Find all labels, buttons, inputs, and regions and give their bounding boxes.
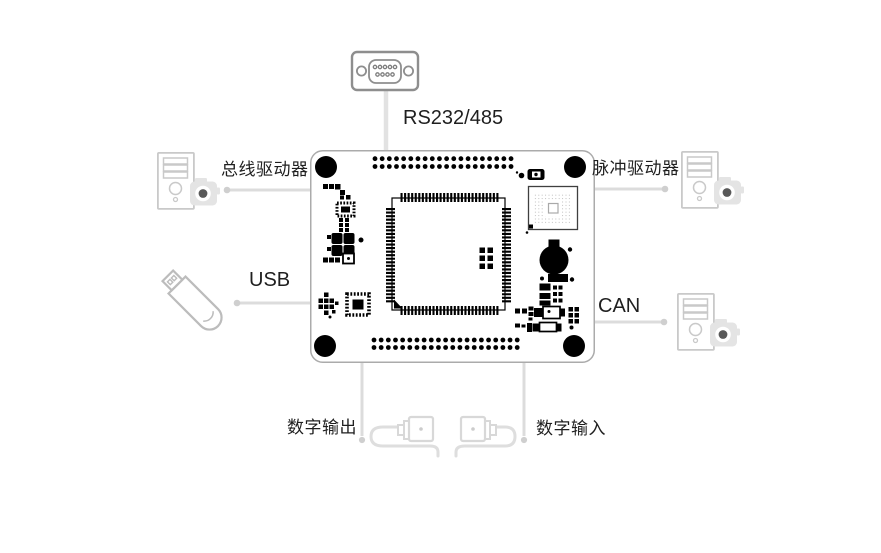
label-rs232-485: RS232/485 [403, 107, 503, 129]
connection-dot [224, 187, 231, 194]
pc-tower-camera-icon-can [678, 294, 740, 350]
connection-dot [662, 186, 669, 193]
connection-dot [521, 437, 527, 443]
mcu-qfp-chip [391, 198, 507, 311]
db9-serial-connector-icon [352, 52, 418, 90]
fpga-footprint [526, 187, 578, 234]
label-digital-output: 数字输出 [287, 419, 357, 438]
connection-dot [234, 300, 241, 307]
diagram-canvas [0, 0, 881, 553]
pcb-dev-board [311, 151, 595, 363]
connection-dot [661, 319, 668, 326]
label-bus-driver: 总线驱动器 [221, 161, 309, 180]
diagram-stage: RS232/485 总线驱动器 脉冲驱动器 USB CAN 数字输出 数字输入 [0, 0, 881, 553]
label-can: CAN [598, 295, 640, 317]
cable-plug-icon-digital-input [456, 417, 515, 456]
label-pulse-driver: 脉冲驱动器 [592, 160, 680, 179]
pc-tower-camera-icon-pulse-driver [682, 152, 744, 208]
cable-plug-icon-digital-output [371, 417, 438, 456]
label-usb: USB [249, 269, 290, 291]
connection-dot [359, 437, 365, 443]
pc-tower-camera-icon-bus-driver [158, 153, 220, 209]
usb-flash-drive-icon [159, 267, 226, 334]
label-digital-input: 数字输入 [536, 420, 606, 439]
